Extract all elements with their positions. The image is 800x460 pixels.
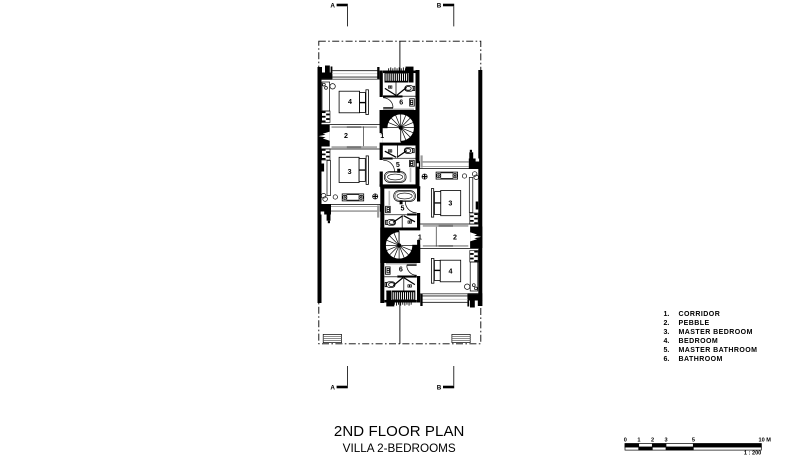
svg-text:VILLA 2-BEDROOMS: VILLA 2-BEDROOMS (343, 442, 456, 455)
svg-text:MASTER BEDROOM: MASTER BEDROOM (679, 329, 753, 336)
svg-text:A: A (330, 3, 335, 10)
svg-text:2: 2 (651, 438, 654, 444)
svg-text:BEDROOM: BEDROOM (679, 338, 719, 345)
svg-text:3: 3 (448, 200, 452, 208)
svg-text:5.: 5. (664, 347, 670, 354)
svg-text:1.: 1. (664, 311, 670, 318)
svg-text:0: 0 (624, 438, 627, 444)
svg-text:5: 5 (401, 205, 405, 213)
svg-text:5: 5 (692, 438, 695, 444)
svg-text:6.: 6. (664, 356, 670, 363)
svg-text:1 : 200: 1 : 200 (744, 451, 761, 457)
svg-text:1: 1 (637, 438, 640, 444)
svg-text:B: B (437, 3, 442, 10)
svg-text:B: B (437, 385, 442, 392)
svg-text:3: 3 (665, 438, 668, 444)
svg-text:1: 1 (380, 132, 384, 140)
svg-text:PEBBLE: PEBBLE (679, 320, 710, 327)
svg-text:A: A (330, 385, 335, 392)
svg-text:5: 5 (396, 161, 400, 169)
svg-text:6: 6 (399, 99, 403, 107)
svg-text:BATHROOM: BATHROOM (679, 356, 723, 363)
svg-text:3.: 3. (664, 329, 670, 336)
svg-text:2.: 2. (664, 320, 670, 327)
svg-text:1: 1 (418, 234, 422, 242)
svg-text:CORRIDOR: CORRIDOR (679, 311, 721, 318)
svg-text:4: 4 (348, 98, 352, 106)
svg-text:2: 2 (453, 234, 457, 242)
svg-text:2: 2 (344, 132, 348, 140)
svg-text:10 M: 10 M (759, 438, 772, 444)
svg-text:6: 6 (399, 266, 403, 274)
svg-text:3: 3 (348, 168, 352, 176)
svg-text:MASTER BATHROOM: MASTER BATHROOM (679, 347, 758, 354)
svg-text:2ND FLOOR PLAN: 2ND FLOOR PLAN (334, 423, 465, 440)
svg-text:4.: 4. (664, 338, 670, 345)
svg-text:4: 4 (449, 268, 453, 276)
